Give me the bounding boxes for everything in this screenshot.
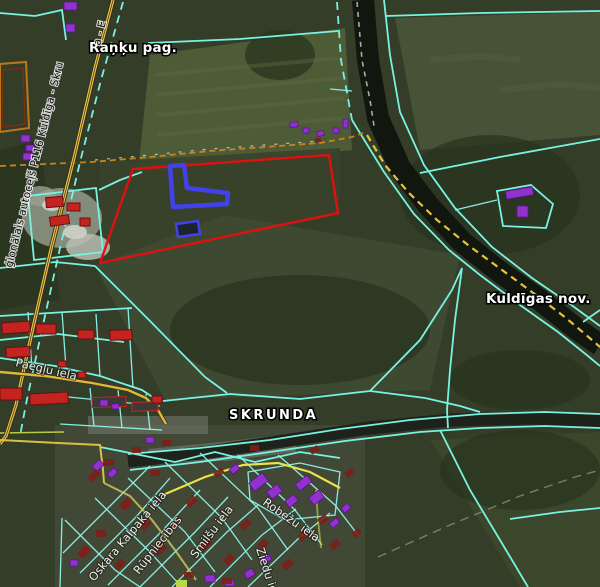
terrain-layer-feature [63, 225, 87, 239]
map-canvas[interactable]: .or-solid{stroke:#b87a1e;stroke-width:2;… [0, 0, 600, 587]
terrain-layer-feature [430, 56, 520, 60]
buildings-layer-feature [110, 330, 132, 341]
buildings-layer-feature [517, 206, 528, 217]
buildings-layer-feature [21, 135, 30, 142]
buildings-layer-feature [78, 330, 94, 339]
buildings-layer-feature [112, 404, 119, 409]
label-kuldigas-novads: Kuldīgas nov. [486, 291, 591, 307]
buildings-layer-feature [64, 2, 77, 10]
buildings-layer-feature [333, 128, 339, 133]
buildings-layer-feature [184, 572, 194, 578]
buildings-layer-feature [290, 121, 299, 127]
buildings-layer-feature [100, 400, 108, 406]
buildings-layer-feature [104, 459, 114, 466]
buildings-layer-feature [152, 396, 162, 403]
buildings-layer-feature [96, 530, 106, 537]
buildings-layer-feature [78, 372, 86, 378]
label-skrunda: SKRUNDA [229, 408, 318, 423]
buildings-layer-feature [146, 437, 154, 443]
terrain-layer-feature [395, 12, 600, 150]
buildings-layer-feature [315, 138, 321, 142]
terrain-layer-feature [440, 430, 600, 510]
buildings-layer-feature [49, 215, 69, 227]
buildings-layer-feature [0, 388, 22, 400]
buildings-layer-feature [66, 24, 75, 32]
terrain-layer-feature [88, 416, 208, 434]
buildings-layer-feature [303, 128, 309, 133]
buildings-layer-feature [46, 196, 64, 207]
buildings-layer-feature [67, 203, 80, 211]
map-viewport[interactable]: .or-solid{stroke:#b87a1e;stroke-width:2;… [0, 0, 600, 587]
buildings-layer-feature [150, 470, 160, 476]
buildings-layer-feature [343, 119, 348, 128]
buildings-layer-feature [205, 575, 215, 582]
buildings-layer-feature [30, 392, 69, 405]
buildings-layer-feature [222, 578, 232, 584]
buildings-layer-feature [2, 321, 31, 334]
buildings-layer-feature [250, 445, 259, 451]
buildings-layer-feature [317, 131, 325, 137]
buildings-layer-feature [176, 580, 187, 587]
buildings-layer-feature [162, 440, 171, 446]
highlighted-building [176, 221, 200, 237]
buildings-layer-feature [92, 396, 126, 407]
buildings-layer-feature [132, 447, 141, 453]
buildings-layer-feature [36, 324, 56, 334]
terrain-layer-feature [450, 350, 590, 410]
buildings-layer-feature [80, 218, 90, 226]
buildings-layer-feature [70, 560, 78, 566]
